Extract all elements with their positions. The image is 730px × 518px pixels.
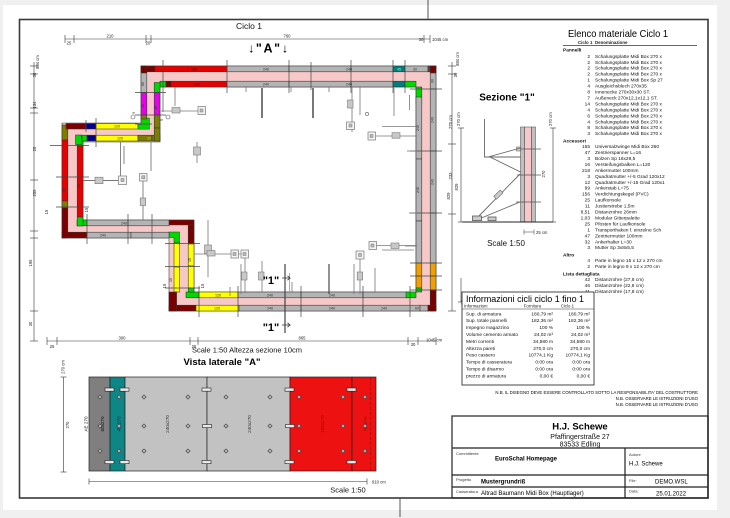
svg-text:9: 9: [160, 119, 164, 121]
svg-text:Schalungsplatte Midi Box 270 x: Schalungsplatte Midi Box 270 x: [595, 101, 663, 107]
svg-text:2: 2: [587, 66, 590, 72]
svg-text:6: 6: [587, 113, 590, 119]
svg-text:195: 195: [28, 259, 33, 267]
svg-text:240: 240: [346, 83, 352, 87]
svg-text:Parte in legno 9 x 12 x 270 cm: Parte in legno 9 x 12 x 270 cm: [595, 264, 660, 270]
svg-text:25.01.2022: 25.01.2022: [656, 492, 687, 498]
svg-text:2: 2: [587, 264, 590, 270]
svg-text:11: 11: [585, 204, 590, 210]
svg-text:Pfosten für Laufkonsole: Pfosten für Laufkonsole: [595, 221, 646, 227]
svg-text:100 %: 100 %: [576, 325, 590, 331]
svg-text:15: 15: [200, 283, 205, 288]
svg-text:60x270: 60x270: [100, 416, 105, 432]
svg-text:300: 300: [119, 336, 127, 341]
svg-text:Autore: Autore: [629, 452, 642, 457]
svg-text:Ankerstab L=75: Ankerstab L=75: [595, 186, 629, 192]
svg-text:182,36 m²: 182,36 m²: [568, 318, 590, 324]
svg-text:180,79 m²: 180,79 m²: [568, 311, 590, 317]
svg-text:20: 20: [32, 146, 37, 151]
svg-text:4: 4: [587, 119, 590, 125]
svg-text:9: 9: [132, 112, 136, 114]
svg-text:Schalungsplatte Midi Box 270 x: Schalungsplatte Midi Box 270 x: [595, 54, 663, 60]
svg-text:Schalungsplatte Midi Box Sp 27: Schalungsplatte Midi Box Sp 27: [595, 78, 663, 84]
svg-text:Metri correnti: Metri correnti: [466, 339, 494, 345]
svg-text:2: 2: [587, 54, 590, 60]
svg-text:47: 47: [585, 233, 591, 239]
svg-text:270 cm: 270 cm: [448, 115, 453, 129]
svg-text:Mustergrundriß: Mustergrundriß: [481, 480, 526, 486]
svg-text:270 cm: 270 cm: [456, 112, 461, 126]
svg-text:240: 240: [263, 68, 269, 72]
svg-text:884 cm: 884 cm: [455, 52, 460, 66]
svg-text:"1": "1": [263, 322, 280, 334]
svg-text:240: 240: [381, 307, 387, 311]
svg-text:Laufkonsole: Laufkonsole: [595, 198, 621, 204]
svg-text:47: 47: [585, 150, 591, 156]
svg-text:Ciclo 1: Ciclo 1: [236, 21, 262, 31]
svg-text:Schalungsplatte Midi Box 270 x: Schalungsplatte Midi Box 270 x: [595, 113, 663, 119]
svg-text:24,02 m³: 24,02 m³: [534, 332, 553, 338]
svg-text:10774,1 Kg: 10774,1 Kg: [565, 353, 590, 359]
svg-text:0,00 €: 0,00 €: [540, 373, 554, 379]
svg-text:0:00 ora: 0:00 ora: [535, 367, 553, 373]
svg-text:Pfaffingerstraße 27: Pfaffingerstraße 27: [550, 434, 610, 441]
svg-text:4: 4: [587, 107, 590, 113]
svg-text:File:: File:: [629, 478, 637, 483]
svg-text:760: 760: [284, 34, 292, 39]
svg-text:Schalungsplatte Midi Box 270 x: Schalungsplatte Midi Box 270 x: [595, 72, 663, 78]
svg-text:15: 15: [188, 258, 192, 262]
svg-text:25: 25: [50, 344, 55, 349]
svg-text:180: 180: [191, 68, 197, 72]
svg-text:Accessori: Accessori: [563, 138, 586, 144]
svg-text:Justierstrebe 1,5m: Justierstrebe 1,5m: [595, 204, 634, 210]
svg-text:Schalungsplatte Midi Box 270 x: Schalungsplatte Midi Box 270 x: [595, 131, 663, 137]
svg-text:32: 32: [585, 239, 591, 245]
svg-text:34,580 m: 34,580 m: [533, 339, 553, 345]
svg-text:Committente: Committente: [456, 451, 479, 456]
svg-text:Außeneck 270x12,1x12,1 ST.: Außeneck 270x12,1x12,1 ST.: [595, 96, 658, 102]
svg-text:H.J. Schewe: H.J. Schewe: [552, 422, 607, 433]
svg-text:Distanzrohre (17,8 cm): Distanzrohre (17,8 cm): [595, 289, 644, 295]
svg-text:60: 60: [431, 79, 435, 83]
svg-text:Altezza pareti: Altezza pareti: [466, 346, 495, 352]
svg-text:Bolzen Sp 16x29,5: Bolzen Sp 16x29,5: [595, 156, 636, 162]
svg-text:30: 30: [453, 72, 458, 77]
svg-text:3: 3: [587, 174, 590, 180]
svg-text:910 cm: 910 cm: [372, 480, 386, 485]
svg-text:Vista laterale "A": Vista laterale "A": [184, 357, 261, 368]
svg-text:120: 120: [214, 307, 220, 311]
svg-text:Ciclo 1: Ciclo 1: [561, 304, 575, 309]
svg-text:83533 Edling: 83533 Edling: [560, 442, 601, 449]
svg-text:865: 865: [299, 336, 307, 341]
svg-text:270,0 cm: 270,0 cm: [533, 346, 553, 352]
svg-text:20: 20: [146, 41, 151, 46]
svg-text:180x270: 180x270: [320, 415, 325, 433]
svg-text:Schalungsplatte Midi Box 270 x: Schalungsplatte Midi Box 270 x: [595, 66, 663, 72]
svg-text:4: 4: [587, 84, 590, 90]
svg-text:255: 255: [32, 189, 37, 197]
svg-text:Lista dettagliata: Lista dettagliata: [563, 271, 600, 277]
svg-text:210: 210: [107, 34, 115, 39]
svg-text:Sezione "1": Sezione "1": [479, 93, 535, 104]
svg-text:240x270: 240x270: [247, 415, 252, 433]
svg-text:240: 240: [329, 294, 335, 298]
svg-text:240: 240: [121, 221, 127, 225]
svg-text:25: 25: [585, 221, 591, 227]
svg-text:Universalzwinge Midi Box 260: Universalzwinge Midi Box 260: [595, 144, 659, 150]
svg-text:60: 60: [141, 82, 145, 86]
svg-text:Quadratmutter +/-15 Grad 120x1: Quadratmutter +/-15 Grad 120x1: [595, 180, 665, 186]
svg-text:180: 180: [194, 83, 200, 87]
svg-text:Pannelli: Pannelli: [563, 48, 581, 54]
svg-text:3: 3: [587, 156, 590, 162]
svg-text:Quadratmutter +/-5 Grad 120x12: Quadratmutter +/-5 Grad 120x12: [595, 174, 665, 180]
svg-text:1045 cm: 1045 cm: [432, 37, 449, 42]
svg-text:12: 12: [585, 180, 591, 186]
svg-text:Mutter Sp 3x8x5,5: Mutter Sp 3x8x5,5: [595, 245, 634, 251]
svg-text:Ankerhalter L=30: Ankerhalter L=30: [595, 239, 632, 245]
svg-text:1045 cm: 1045 cm: [426, 338, 443, 343]
svg-text:99: 99: [585, 186, 591, 192]
svg-text:25: 25: [585, 198, 591, 204]
svg-text:16: 16: [585, 162, 591, 168]
svg-text:240: 240: [431, 117, 435, 123]
svg-text:Ciclo 1: Ciclo 1: [578, 40, 593, 45]
svg-text:7: 7: [587, 96, 590, 102]
svg-text:0:00 ora: 0:00 ora: [535, 360, 553, 366]
svg-text:240: 240: [329, 307, 335, 311]
svg-text:N.B. IL DISEGNO DEVE ESSERE CO: N.B. IL DISEGNO DEVE ESSERE CONTROLLATO …: [495, 390, 698, 395]
svg-text:60: 60: [415, 307, 419, 311]
svg-text:prezzo di armatura: prezzo di armatura: [466, 373, 506, 379]
svg-text:1: 1: [587, 78, 590, 84]
svg-text:1: 1: [587, 227, 590, 233]
svg-text:Altrad Baumann Midi Box (Haupt: Altrad Baumann Midi Box (Hauptlager): [481, 491, 584, 497]
svg-text:Scale 1:50: Scale 1:50: [330, 486, 365, 495]
svg-text:Schalungsplatte Midi Box 270 x: Schalungsplatte Midi Box 270 x: [595, 107, 663, 113]
svg-text:Modular Gitterpalette: Modular Gitterpalette: [595, 216, 640, 222]
svg-text:DEMO.WSL: DEMO.WSL: [655, 480, 688, 486]
svg-text:30: 30: [413, 68, 417, 72]
svg-text:270,0 cm: 270,0 cm: [570, 346, 590, 352]
svg-text:Distanzrohre 26mm: Distanzrohre 26mm: [595, 210, 637, 216]
svg-text:Informazioni cicli ciclo 1 fi: Informazioni cicli ciclo 1 fino 1: [466, 293, 584, 304]
svg-text:218: 218: [582, 168, 590, 174]
svg-text:270 cm: 270 cm: [61, 360, 66, 374]
svg-text:Schalungsplatte Midi Box 270 x: Schalungsplatte Midi Box 270 x: [595, 125, 663, 131]
svg-text:Parte in legno 15 x 12 x 270 c: Parte in legno 15 x 12 x 270 cm: [595, 258, 662, 264]
svg-text:Zentrierspanner L=16: Zentrierspanner L=16: [595, 150, 641, 156]
svg-text:Schalungsplatte Midi Box 270 x: Schalungsplatte Midi Box 270 x: [595, 60, 663, 66]
svg-text:Volume cemento armato: Volume cemento armato: [466, 332, 518, 338]
svg-text:100 %: 100 %: [539, 325, 553, 331]
svg-text:H.J. Schewe: H.J. Schewe: [629, 462, 663, 468]
svg-text:"1": "1": [263, 275, 280, 287]
svg-text:15: 15: [62, 188, 66, 192]
svg-text:30: 30: [419, 37, 424, 42]
svg-text:15: 15: [162, 283, 167, 288]
svg-text:Sup. totale pannelli: Sup. totale pannelli: [466, 318, 507, 324]
svg-text:Zentriermutter 100mm: Zentriermutter 100mm: [595, 233, 642, 239]
svg-text:Schalungsplatte Midi Box 270 x: Schalungsplatte Midi Box 270 x: [595, 119, 663, 125]
svg-text:15: 15: [84, 207, 89, 212]
svg-text:2: 2: [587, 72, 590, 78]
svg-text:240: 240: [431, 179, 435, 185]
svg-text:46: 46: [585, 283, 591, 289]
svg-text:4: 4: [587, 258, 590, 264]
svg-text:N.B. OSSERVARE LE ISTRUZIONI D: N.B. OSSERVARE LE ISTRUZIONI D'USO: [616, 396, 699, 401]
svg-text:EuroSchal Homepage: EuroSchal Homepage: [495, 457, 558, 463]
svg-text:3: 3: [587, 131, 590, 137]
svg-text:Data:: Data:: [629, 489, 639, 494]
svg-text:30: 30: [32, 72, 37, 77]
svg-text:Ankermutter 100mm: Ankermutter 100mm: [595, 168, 638, 174]
svg-text:75x270: 75x270: [363, 416, 368, 432]
svg-text:Sup. di armatura: Sup. di armatura: [466, 311, 502, 317]
svg-text:8: 8: [587, 90, 590, 96]
svg-text:240: 240: [346, 68, 352, 72]
svg-text:15: 15: [169, 278, 173, 282]
svg-text:829: 829: [454, 183, 459, 191]
svg-text:884 cm: 884 cm: [35, 55, 40, 69]
svg-text:Casseratura: Casseratura: [456, 489, 479, 494]
svg-text:15: 15: [44, 209, 49, 214]
svg-text:Progetto: Progetto: [456, 477, 472, 482]
svg-text:Ausgleichsblech 270x35: Ausgleichsblech 270x35: [595, 84, 647, 90]
svg-text:156: 156: [582, 192, 590, 198]
svg-text:45: 45: [141, 104, 145, 108]
svg-text:Innenecke 270x30x30 ST.: Innenecke 270x30x30 ST.: [595, 90, 650, 96]
svg-text:N.B. OSSERVARE LE ISTRUZIONI D: N.B. OSSERVARE LE ISTRUZIONI D'USO: [616, 402, 699, 407]
svg-text:30: 30: [147, 137, 151, 141]
svg-text:240: 240: [416, 187, 420, 193]
svg-text:Distanzrohre (22,8 cm): Distanzrohre (22,8 cm): [595, 283, 644, 289]
svg-text:240: 240: [100, 234, 106, 238]
svg-text:Distanzrohre (27,8 cm): Distanzrohre (27,8 cm): [595, 277, 644, 283]
svg-text:8,51: 8,51: [581, 210, 591, 216]
svg-text:120: 120: [114, 125, 120, 129]
svg-text:25: 25: [67, 41, 72, 46]
svg-text:3: 3: [587, 245, 590, 251]
svg-text:270: 270: [541, 170, 546, 178]
svg-text:10774,1 Kg: 10774,1 Kg: [528, 353, 553, 359]
svg-text:↓"A"↓: ↓"A"↓: [248, 42, 288, 56]
svg-text:Tempo di casseratura: Tempo di casseratura: [466, 360, 512, 366]
svg-text:Scale 1:50 Altezza sezione 1: Scale 1:50 Altezza sezione 10cm: [192, 346, 302, 355]
svg-text:Elenco materiale Ciclo 1: Elenco materiale Ciclo 1: [568, 28, 668, 40]
svg-text:0,00 €: 0,00 €: [577, 373, 591, 379]
svg-text:14: 14: [585, 101, 591, 107]
svg-text:24,02 m³: 24,02 m³: [571, 332, 590, 338]
svg-text:240: 240: [416, 125, 420, 131]
svg-text:45: 45: [154, 106, 158, 110]
svg-text:15: 15: [77, 184, 81, 188]
svg-text:42: 42: [585, 277, 591, 283]
svg-text:AE 270: AE 270: [84, 416, 89, 432]
svg-text:829: 829: [446, 192, 451, 200]
svg-text:134: 134: [32, 101, 37, 109]
svg-text:Transporthaken f. einzelne Sch: Transporthaken f. einzelne Sch: [595, 227, 662, 233]
svg-text:182,36 m²: 182,36 m²: [531, 318, 553, 324]
svg-text:240: 240: [267, 307, 273, 311]
svg-text:1,03: 1,03: [581, 216, 591, 222]
svg-text:270: 270: [65, 421, 70, 429]
svg-text:0:00 ora: 0:00 ora: [572, 360, 590, 366]
svg-text:Fornitura: Fornitura: [524, 304, 542, 309]
svg-text:233: 233: [448, 172, 453, 180]
svg-text:240: 240: [263, 83, 269, 87]
svg-text:120: 120: [215, 294, 221, 298]
svg-text:Verdichtungskegel (PVC): Verdichtungskegel (PVC): [595, 192, 649, 198]
svg-text:Impegno magazzino: Impegno magazzino: [466, 325, 510, 331]
svg-text:240x270: 240x270: [165, 415, 170, 433]
svg-text:Informazioni: Informazioni: [464, 304, 487, 309]
svg-text:30: 30: [411, 342, 416, 347]
svg-text:34,580 m: 34,580 m: [570, 339, 590, 345]
svg-text:Peso cassero: Peso cassero: [466, 353, 495, 359]
svg-text:180,79 m²: 180,79 m²: [531, 311, 553, 317]
svg-text:Versteifungsbalken L=120: Versteifungsbalken L=120: [595, 162, 651, 168]
svg-text:Denominazione: Denominazione: [595, 40, 628, 45]
svg-text:0:00 ora: 0:00 ora: [572, 367, 590, 373]
svg-text:45: 45: [397, 68, 401, 72]
svg-text:240: 240: [267, 294, 273, 298]
svg-text:Altro: Altro: [563, 252, 574, 258]
svg-text:Scale 1:50: Scale 1:50: [487, 239, 525, 248]
svg-text:155: 155: [582, 144, 590, 150]
svg-text:30: 30: [28, 321, 33, 326]
svg-text:2: 2: [587, 60, 590, 66]
svg-text:Tempo di disarmo: Tempo di disarmo: [466, 367, 504, 373]
svg-text:120: 120: [117, 137, 123, 141]
svg-text:25 cm: 25 cm: [536, 230, 548, 235]
svg-text:8: 8: [587, 125, 590, 131]
svg-text:270 cm: 270 cm: [548, 112, 553, 126]
